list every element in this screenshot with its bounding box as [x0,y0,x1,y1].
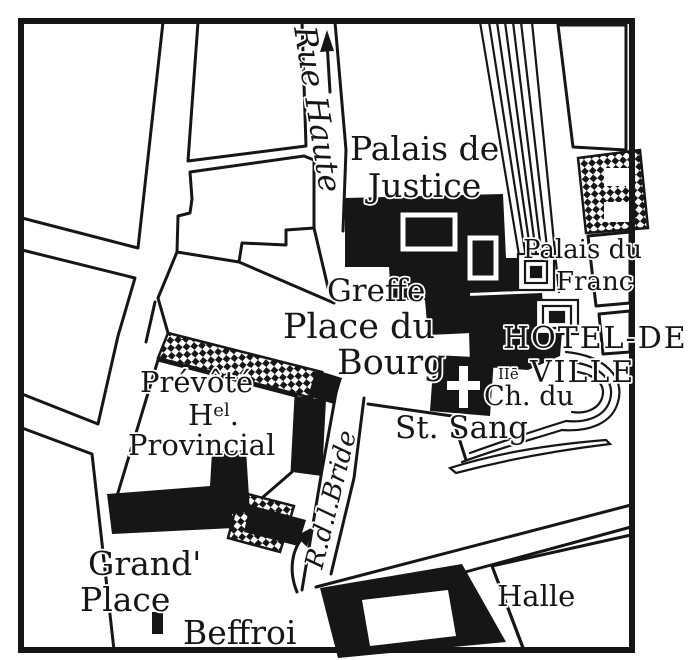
label-hotel-de: HOTEL-DE [503,321,688,356]
label-place: Place [80,580,170,619]
label-greffe: Greffe [327,273,425,309]
halles-courtyard [362,590,456,646]
label-palais-du-franc-line1: Palais du [523,235,642,265]
label-halle: Halle [497,579,575,613]
city-map: Rue Haute Palais de Justice Palais du Fr… [0,0,696,660]
label-ch-du: Ch. du [484,381,574,412]
label-palais-de-justice-line2: Justice [365,166,481,205]
label-palais-de-justice-line1: Palais de [350,129,499,168]
label-grand: Grand' [88,544,201,583]
block-top-left [22,22,163,248]
label-prevote: Prévôté [140,365,253,399]
label-palais-du-franc-line2: Franc [556,267,633,297]
label-beffroi: Beffroi [183,613,296,652]
label-st-sang: St. Sang [395,410,528,446]
hatched-notch-2 [604,202,630,222]
map-canvas: Rue Haute Palais de Justice Palais du Fr… [0,0,696,660]
building-prevote-east-bar [292,396,326,476]
label-provincial: Provincial [128,428,275,462]
label-bourg: Bourg [337,343,445,383]
label-place-du: Place du [283,307,435,347]
hatched-notch-1 [604,168,630,186]
